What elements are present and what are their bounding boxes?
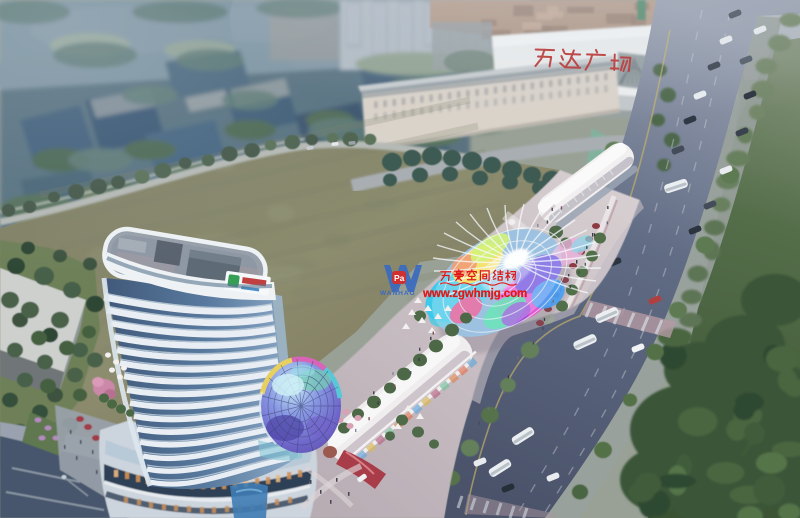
svg-text:WANHAO: WANHAO [380, 290, 416, 297]
svg-text:www.zgwhmjg.com: www.zgwhmjg.com [422, 288, 527, 300]
svg-text:Pa: Pa [394, 273, 405, 283]
